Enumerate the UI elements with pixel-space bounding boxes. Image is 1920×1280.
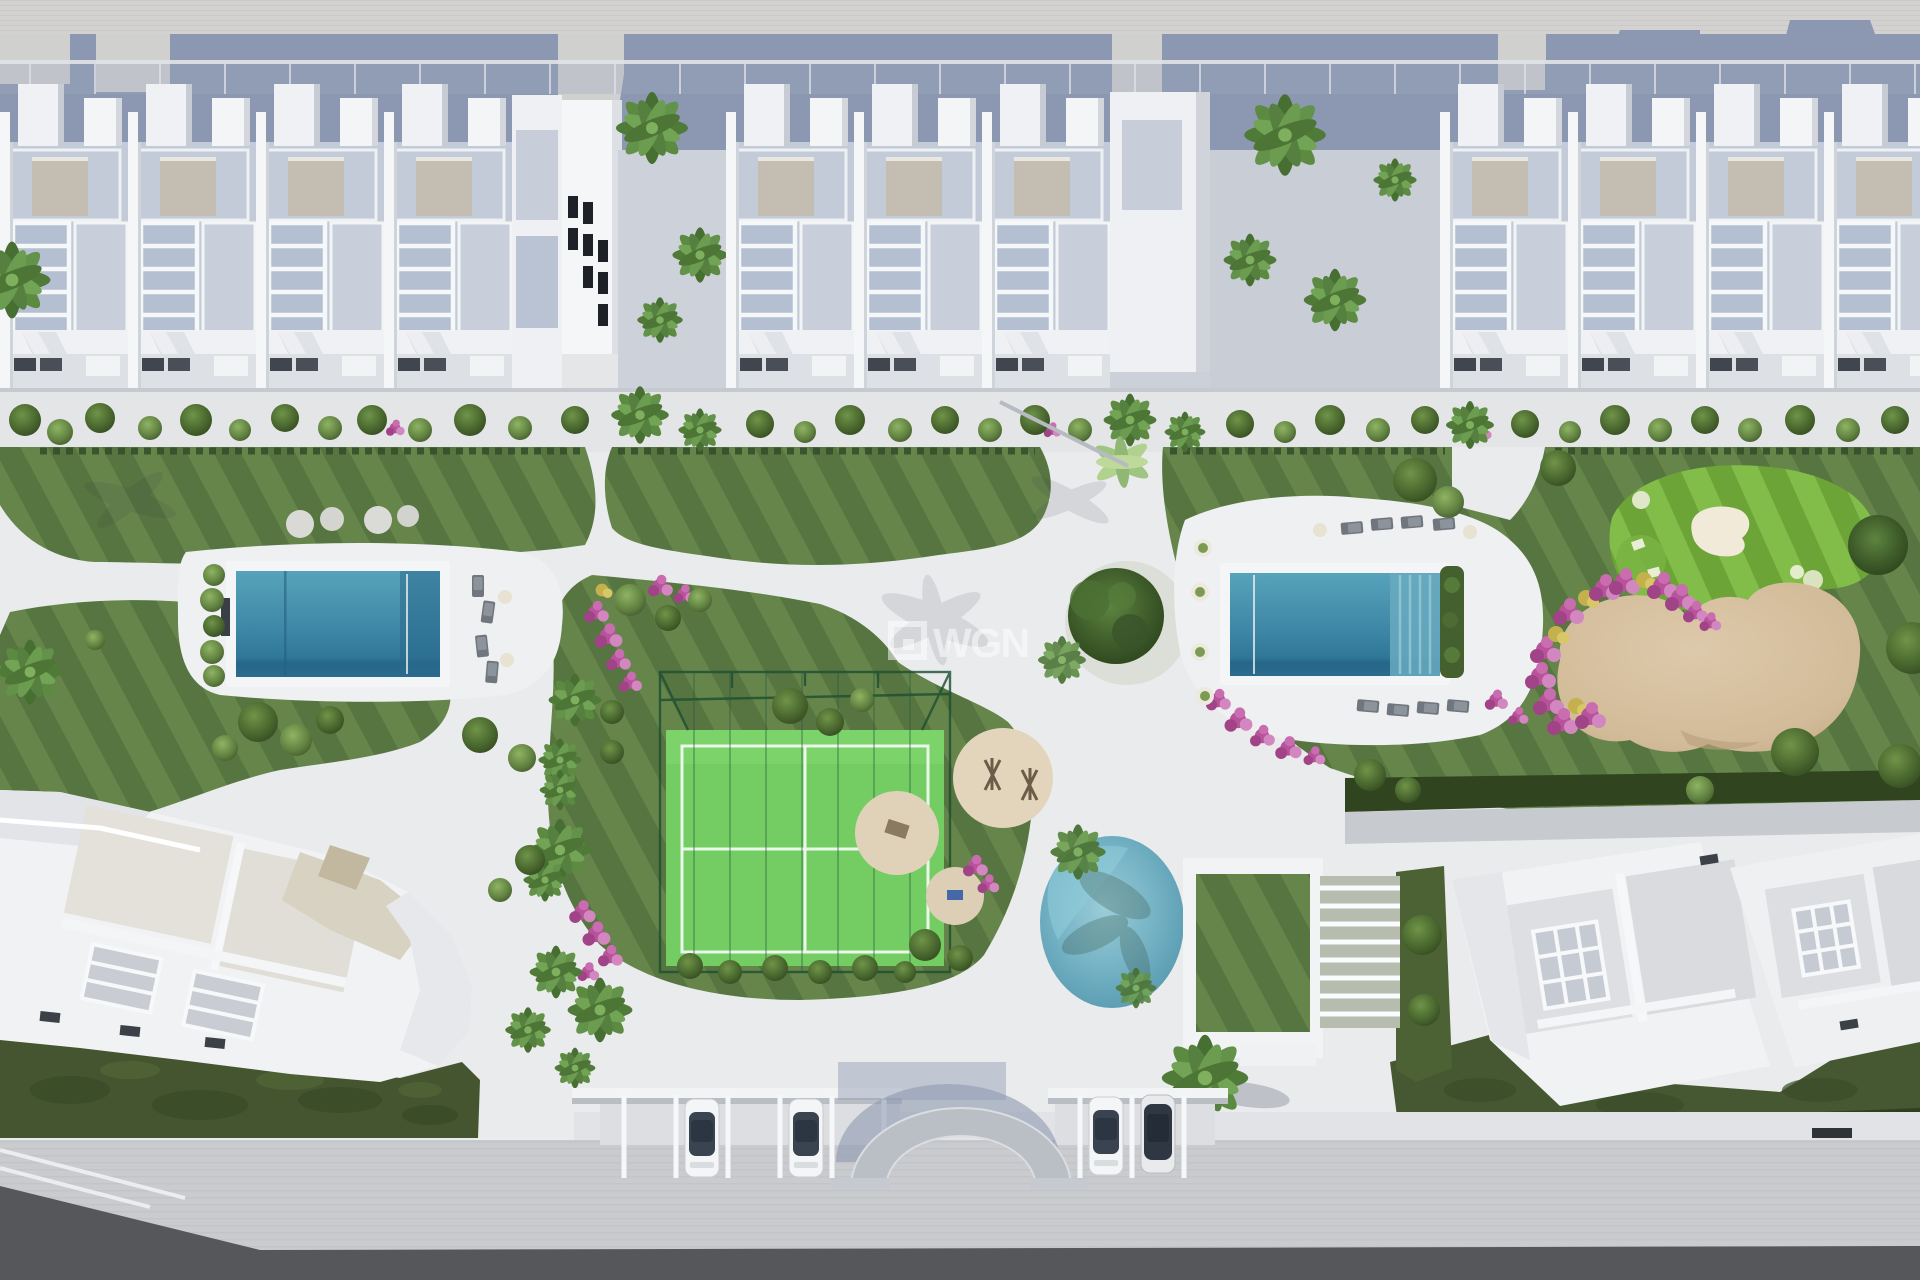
svg-text:WGN: WGN bbox=[933, 620, 1029, 666]
